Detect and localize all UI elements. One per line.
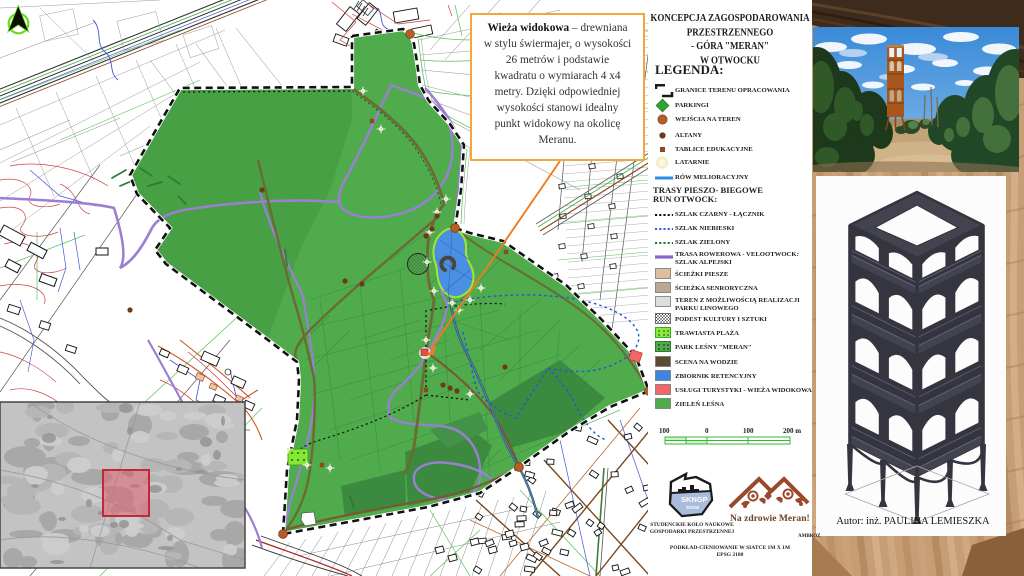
svg-text:200 m: 200 m xyxy=(783,427,801,435)
svg-text:SKNGP: SKNGP xyxy=(681,495,708,504)
svg-text:SGGW: SGGW xyxy=(686,505,699,510)
svg-text:100: 100 xyxy=(659,427,670,435)
svg-text:0: 0 xyxy=(705,427,709,435)
svg-text:100: 100 xyxy=(743,427,754,435)
svg-text:Na zdrowie Meran!: Na zdrowie Meran! xyxy=(730,513,810,524)
